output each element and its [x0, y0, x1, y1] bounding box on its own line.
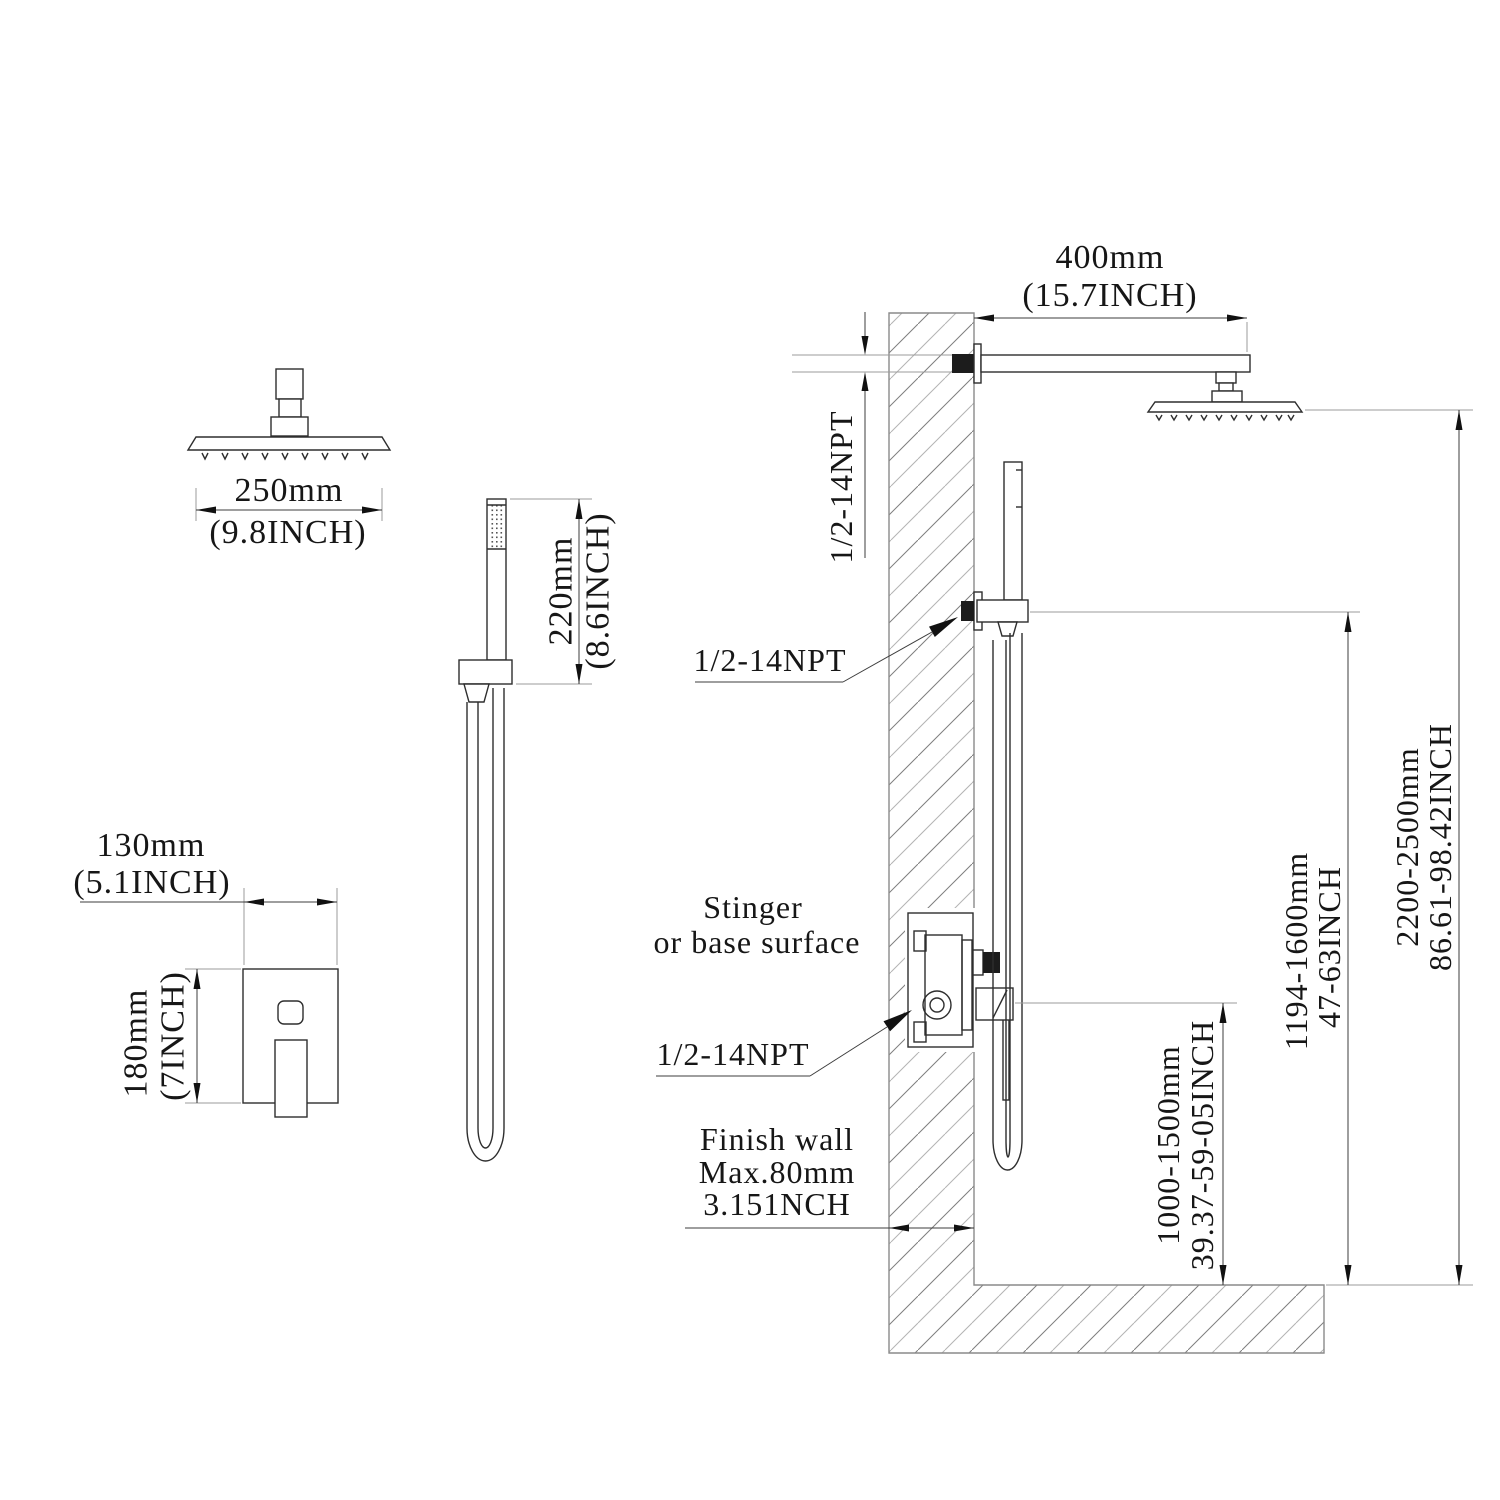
mounted-showerhead-plate [1148, 402, 1302, 412]
surface-note-line1: Stinger [703, 889, 802, 925]
head-width-mm-label: 250mm [235, 472, 344, 509]
valve-handle [275, 1040, 307, 1117]
valve-height-mm-label: 180mm [118, 989, 155, 1098]
head-width-inch-label: (9.8INCH) [209, 514, 366, 551]
hand-length-mm-label: 220mm [543, 537, 580, 646]
diverter-button [278, 1001, 303, 1024]
wall-note-line3: 3.151NCH [703, 1186, 851, 1222]
wand-bracket [459, 660, 512, 684]
total-height-inch-label: 86.61-98.42INCH [1422, 723, 1458, 971]
outlet-thread-label: 1/2-14NPT [694, 642, 847, 678]
valve-recess [905, 908, 1000, 1052]
surface-note-line2: or base surface [654, 924, 861, 960]
head-connector-mid [279, 399, 301, 417]
outlet-threaded-nipple [961, 601, 974, 621]
mounted-wand [1004, 462, 1022, 600]
head-joint-base [1212, 391, 1242, 402]
mounted-bracket [977, 600, 1028, 622]
valve-width-mm-label: 130mm [97, 827, 206, 864]
arm-wall-flange [974, 344, 981, 383]
valve-width-inch-label: (5.1INCH) [73, 864, 230, 901]
valve-thread-label: 1/2-14NPT [657, 1036, 810, 1072]
valve-height-inch-label: 39.37-59-05INCH [1184, 1020, 1220, 1271]
shower-system-dimension-diagram: 250mm (9.8INCH) 220mm (8.6INCH) 130mm (5… [0, 0, 1500, 1500]
valve-height-mm-label: 1000-1500mm [1150, 1045, 1186, 1244]
showerhead-plate [188, 437, 390, 450]
head-joint-mid [1219, 383, 1233, 391]
valve-height-inch-label: (7INCH) [155, 971, 192, 1101]
arm-thread-label: 1/2-14NPT [823, 411, 859, 564]
hand-length-inch-label: (8.6INCH) [580, 512, 617, 669]
head-connector-base [271, 417, 308, 436]
shower-arm [981, 355, 1250, 372]
valve-stem-collar [973, 950, 983, 975]
hose-cone-adapter [998, 622, 1017, 636]
arm-length-mm-label: 400mm [1056, 239, 1165, 276]
hose-cone-adapter [464, 684, 489, 702]
head-joint-top [1216, 372, 1236, 383]
wall-note-line2: Max.80mm [699, 1154, 855, 1190]
wand-spray-face [489, 505, 504, 549]
head-connector-top [276, 369, 303, 399]
background [0, 0, 1500, 1500]
valve-threaded-stem [983, 952, 1000, 973]
hand-height-mm-label: 1194-1600mm [1278, 852, 1314, 1050]
arm-threaded-nipple [952, 354, 974, 373]
technical-drawing-canvas: 250mm (9.8INCH) 220mm (8.6INCH) 130mm (5… [0, 0, 1500, 1500]
arm-length-inch-label: (15.7INCH) [1022, 277, 1197, 314]
total-height-mm-label: 2200-2500mm [1389, 747, 1425, 946]
wall-note-line1: Finish wall [700, 1121, 854, 1157]
hand-height-inch-label: 47-63INCH [1311, 866, 1347, 1028]
